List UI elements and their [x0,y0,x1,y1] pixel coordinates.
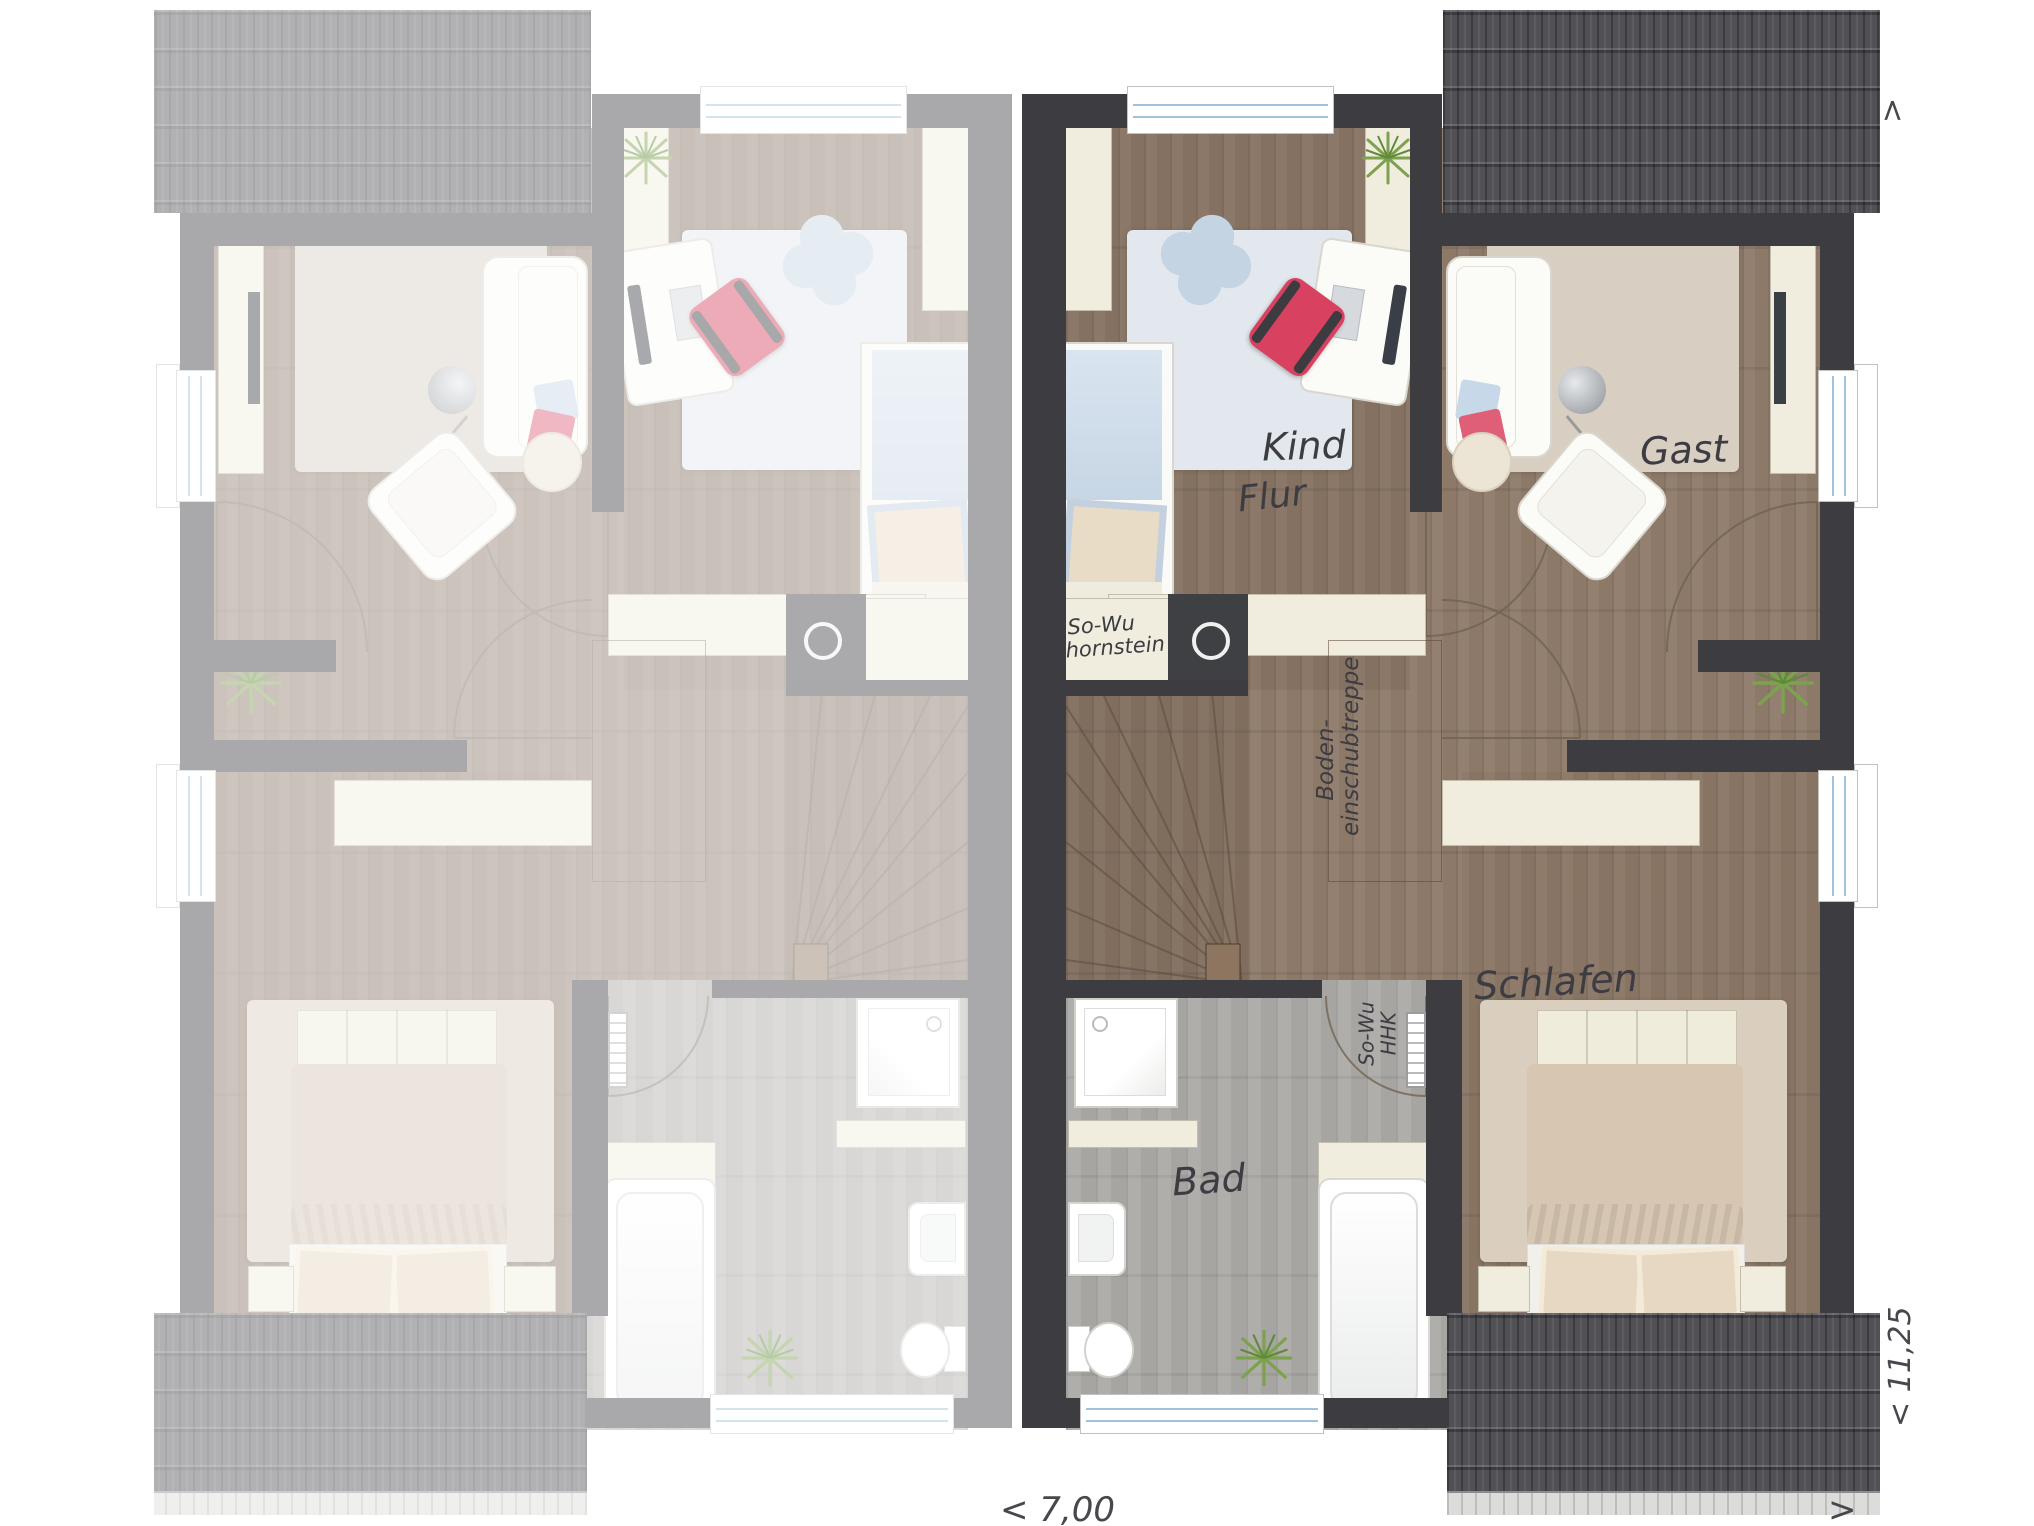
dresser-schlafen [1442,780,1700,846]
bathtub [604,1178,716,1422]
bed-pillow [292,1245,398,1322]
heater-label-line2: HHK [1378,996,1400,1072]
chimney-ring-icon [1192,622,1230,660]
bathtub-inner [616,1192,704,1408]
attic-stairs-label-line1: Boden- [1314,684,1339,836]
heater-label: So-Wu HHK [1356,996,1399,1072]
unit-left-mirrored [152,80,1012,1430]
bed-pillow [1636,1245,1742,1322]
door-arc-gast [217,502,367,652]
plant-bad-icon [738,1326,802,1390]
wall-gast-top [180,213,592,246]
wall-kind-gast [592,128,624,512]
wall-schlafen-top [214,740,467,772]
room-label-flur: Flur [1236,475,1308,521]
radiator-hhk [608,1012,628,1088]
sink-basin [920,1214,956,1262]
wall-right [1820,900,1854,1316]
dresser-schlafen [334,780,592,846]
roof-gutter [1447,1491,1880,1515]
room-label-gast: Gast [1639,428,1728,472]
room-label-bad: Bad [1171,1157,1247,1203]
chimney-label: So-Wu Schornstein [1037,610,1168,664]
wall-gast-flur [1698,640,1820,672]
room-label-schlafen: Schlafen [1473,958,1639,1008]
room-label-kind: Kind [1261,425,1346,469]
wall-bad-right [572,980,608,1316]
dimension-width: < 7,00 [1000,1490,1115,1526]
door-arc-schlafen [1442,600,1580,738]
wall-gast-top [1442,213,1854,246]
wall-right [180,900,214,1316]
heater-label-line1: So-Wu [1356,996,1378,1072]
roof-gutter [154,1491,587,1515]
bath-shelf [836,1120,966,1148]
party-wall [968,94,1012,1428]
window-bad [710,1394,954,1434]
bed-duvet [291,1064,507,1250]
floor-lamp [1558,366,1606,414]
dimension-depth: < 11,25 [1883,1267,1917,1427]
wall-right [180,500,214,770]
shower-drain-icon [1092,1016,1108,1032]
nightstand [504,1266,556,1312]
floor-lamp [428,366,476,414]
chimney-flue [786,594,866,684]
toilet [1084,1322,1134,1378]
sink [908,1202,966,1276]
window-gast [176,370,216,502]
shower [1074,998,1178,1108]
door-arc-schlafen [454,600,592,738]
wall-chimney [1022,680,1248,696]
roof-top [1443,10,1880,213]
sink [1068,1202,1126,1276]
roof-top [154,10,591,213]
attic-stairs-label-line2: einschubtreppe [1339,684,1364,836]
window-glass [188,776,202,896]
wall-kind-gast [1410,128,1442,512]
plant-bad-icon [1232,1326,1296,1390]
roof-bottom [1447,1313,1880,1493]
bed-pillow [1538,1245,1644,1322]
side-table-round [522,432,582,492]
window-glass [716,1408,948,1422]
unit-left-slot [152,80,1012,1430]
window-schlafen [1818,770,1858,902]
plant-kind-icon [1358,128,1418,188]
unit-right: Kind Gast Flur Schlafen Bad So-Wu Schorn… [1022,80,1882,1430]
wall-gast-flur [214,640,336,672]
sink-basin [1078,1214,1114,1262]
bed-headboard [297,1010,497,1070]
door-arc-gast [1667,502,1817,652]
wall-bad-top [712,980,968,998]
sofa-gast [1446,256,1552,458]
attic-stairs-label: Boden- einschubtreppe [1314,684,1454,836]
chimney-flue [1168,594,1248,684]
window-glass [706,104,901,118]
bathtub-inner [1330,1192,1418,1408]
toilet [900,1322,950,1378]
bed-pillow [390,1245,496,1322]
roof-bottom [154,1313,587,1493]
monitor-icon [627,284,652,365]
dimension-depth-arrow-icon: > [1875,83,1909,123]
nightstand [1478,1266,1530,1312]
side-table-round [1452,432,1512,492]
bathtub [1318,1178,1430,1422]
wall-bad-right [1426,980,1462,1316]
nightstand [248,1266,294,1312]
shower [856,998,960,1108]
wall-chimney [786,680,1012,696]
bed-headboard [1537,1010,1737,1070]
shower-drain-icon [926,1016,942,1032]
tv-icon [1774,292,1786,404]
wall-right [180,246,214,370]
window-glass [1133,104,1328,118]
wall-right [1820,500,1854,770]
bed-duvet [1527,1064,1743,1250]
window-glass [1832,776,1846,896]
bath-shelf [1068,1120,1198,1148]
window-kind [700,86,907,134]
window-glass [188,376,202,496]
wall-schlafen-top [1567,740,1820,772]
nightstand [1740,1266,1786,1312]
window-bad [1080,1394,1324,1434]
window-gast [1818,370,1858,502]
window-schlafen [176,770,216,902]
party-wall [1022,94,1066,1428]
radiator-hhk [1406,1012,1426,1088]
attic-hatch-outline [592,640,706,882]
window-glass [1832,376,1846,496]
window-glass [1086,1408,1318,1422]
monitor-icon [1382,284,1407,365]
bed-kind-blanket [1050,350,1162,500]
chimney-ring-icon [804,622,842,660]
wall-bad-top [1066,980,1322,998]
wall-right [1820,246,1854,370]
floorplan-canvas: Kind Gast Flur Schlafen Bad So-Wu Schorn… [0,0,2034,1526]
window-kind [1127,86,1334,134]
plant-kind-icon [616,128,676,188]
dimension-width-arrow-icon: > [1828,1490,1857,1526]
sofa-gast [482,256,588,458]
tv-icon [248,292,260,404]
